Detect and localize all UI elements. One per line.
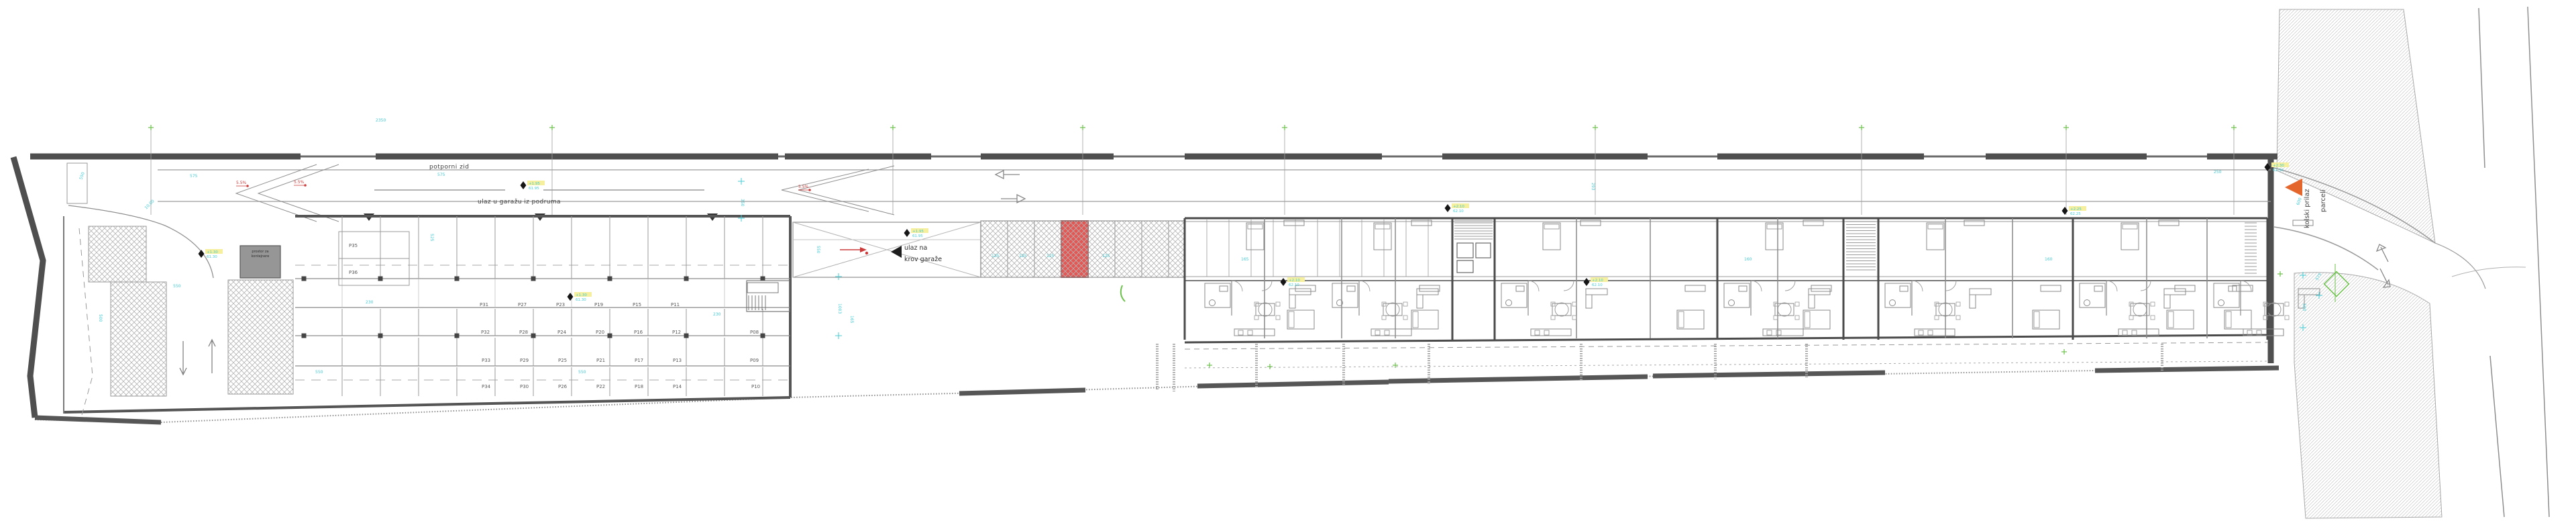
parking-stall-label: P36 xyxy=(349,270,358,275)
parking-stall-label: P20 xyxy=(596,330,604,335)
dimension-label: 230 xyxy=(713,312,721,317)
dimension-label: 125 xyxy=(1019,254,1027,258)
dimension-label: 125 xyxy=(991,254,1000,258)
street-and-sidewalk xyxy=(2277,9,2442,518)
slope-marker xyxy=(808,189,811,191)
parking-stall-label: P27 xyxy=(518,302,527,307)
parking-stall-label: P14 xyxy=(673,384,682,389)
svg-text:61.95: 61.95 xyxy=(529,187,539,191)
dimension-label: 550 xyxy=(816,246,820,254)
container-label-line1: prostor za xyxy=(241,250,280,254)
parking-stall-label: P28 xyxy=(519,330,528,335)
dimension-label: 550 xyxy=(78,171,86,180)
svg-text:62.10: 62.10 xyxy=(1453,209,1464,213)
dimension-label: 230 xyxy=(366,300,374,305)
retaining-wall-label: potporni zid xyxy=(429,164,470,171)
slope-marker xyxy=(860,247,868,254)
floor-plan-drawing: P11P15P19P23P27P31P08P12P16P20P24P28P32P… xyxy=(0,0,2576,523)
dimension-label: 600 xyxy=(2296,197,2303,205)
parking-stall-label: P16 xyxy=(634,330,643,335)
parking-stall-label: P29 xyxy=(520,358,529,363)
dimension-label: 160 xyxy=(1744,257,1752,262)
slope-marker xyxy=(246,185,249,187)
parking-stall-label: P26 xyxy=(558,384,568,389)
parking-stall-label: P32 xyxy=(481,330,490,335)
dimension-label: 165 xyxy=(849,316,854,324)
dimension-label: 575 xyxy=(190,174,198,179)
dimension-label: 500 xyxy=(98,314,103,322)
parking-stall-label: P08 xyxy=(750,330,759,335)
slope-marker xyxy=(304,184,307,187)
dimension-label: 550 xyxy=(578,370,586,375)
parking-stall-label: P21 xyxy=(596,358,605,363)
svg-text:+1.30: +1.30 xyxy=(576,293,587,297)
vehicle-access-label-2: parceli xyxy=(2320,165,2327,212)
parking-stall-label: P09 xyxy=(750,358,759,363)
dimension-label: 250 xyxy=(2214,170,2222,175)
svg-text:+1.95: +1.95 xyxy=(529,182,540,186)
container-label-line2: kontejnere xyxy=(241,254,280,259)
parking-stall-label: P30 xyxy=(520,384,529,389)
vehicle-access-label-1: kolski prilaz xyxy=(2304,149,2311,228)
dimension-label: 293 xyxy=(1591,183,1595,191)
dimension-label: 575 xyxy=(437,173,445,177)
container-area-label: prostor za kontejnere xyxy=(241,250,280,259)
parking-stall-label: P35 xyxy=(349,243,358,248)
svg-text:+1.95: +1.95 xyxy=(912,230,924,234)
svg-text:62.10: 62.10 xyxy=(1592,283,1603,287)
roof-access-label: ulaz na krov garaže xyxy=(904,242,942,265)
svg-text:61.30: 61.30 xyxy=(576,298,586,302)
parking-stall-label: P12 xyxy=(672,330,681,335)
apartment-building xyxy=(1210,300,2282,317)
site-plan-canvas: P11P15P19P23P27P31P08P12P16P20P24P28P32P… xyxy=(0,0,2576,523)
parking-stall-label: P11 xyxy=(671,302,680,307)
dimension-label: 10.00 xyxy=(144,199,155,210)
svg-text:5.5%: 5.5% xyxy=(294,180,305,185)
roof-access-line2: krov garaže xyxy=(904,254,942,265)
parking-stall-label: P10 xyxy=(751,384,760,389)
dimension-label: 1003 xyxy=(837,303,842,314)
svg-text:+2.10: +2.10 xyxy=(1592,279,1603,283)
parking-stall-label: P33 xyxy=(482,358,490,363)
svg-text:5.5%: 5.5% xyxy=(236,181,247,185)
roof-access-arrow-icon xyxy=(891,246,902,258)
parking-stall-label: P18 xyxy=(635,384,643,389)
dimension-label: 165 xyxy=(1241,257,1249,262)
parking-stall-label: P22 xyxy=(596,384,605,389)
svg-text:+2.10: +2.10 xyxy=(1289,279,1300,283)
svg-text:+2.25: +2.25 xyxy=(2070,207,2082,211)
parking-stall-label: P31 xyxy=(480,302,488,307)
parking-stall-label: P24 xyxy=(557,330,567,335)
dimension-label: 125 xyxy=(1046,254,1055,258)
dimension-label: 160 xyxy=(2045,257,2053,262)
svg-text:+1.30: +1.30 xyxy=(207,250,218,254)
dimension-label: 550 xyxy=(315,370,323,375)
parking-stall-label: P19 xyxy=(594,302,603,307)
roof-access-line1: ulaz na xyxy=(904,242,942,254)
svg-text:62.10: 62.10 xyxy=(1289,283,1299,287)
svg-text:62.25: 62.25 xyxy=(2070,212,2081,216)
svg-text:+2.30: +2.30 xyxy=(2273,164,2284,168)
dimension-label: 2350 xyxy=(376,118,386,123)
parking-stall-label: P25 xyxy=(558,358,567,363)
svg-text:+2.10: +2.10 xyxy=(1453,205,1464,209)
dimension-label: 500 xyxy=(2302,303,2306,312)
parking-stall-label: P17 xyxy=(635,358,643,363)
dimension-label: 525 xyxy=(429,234,434,242)
svg-text:62.30: 62.30 xyxy=(2273,169,2284,173)
dimension-label: 350 xyxy=(740,199,745,207)
parking-stall-label: P34 xyxy=(482,384,491,389)
garage-entry-label: ulaz u garažu iz podruma xyxy=(478,199,561,205)
svg-text:61.30: 61.30 xyxy=(207,255,217,259)
parking-stall-label: P23 xyxy=(556,302,565,307)
dimension-label: 550 xyxy=(173,284,181,289)
parking-stall-label: P15 xyxy=(633,302,641,307)
dimension-label: 125 xyxy=(1102,254,1110,258)
svg-text:5.5%: 5.5% xyxy=(798,185,809,189)
svg-text:61.95: 61.95 xyxy=(912,234,923,238)
parking-stall-label: P13 xyxy=(673,358,682,363)
site-entrance-triangle-icon xyxy=(2285,179,2302,196)
